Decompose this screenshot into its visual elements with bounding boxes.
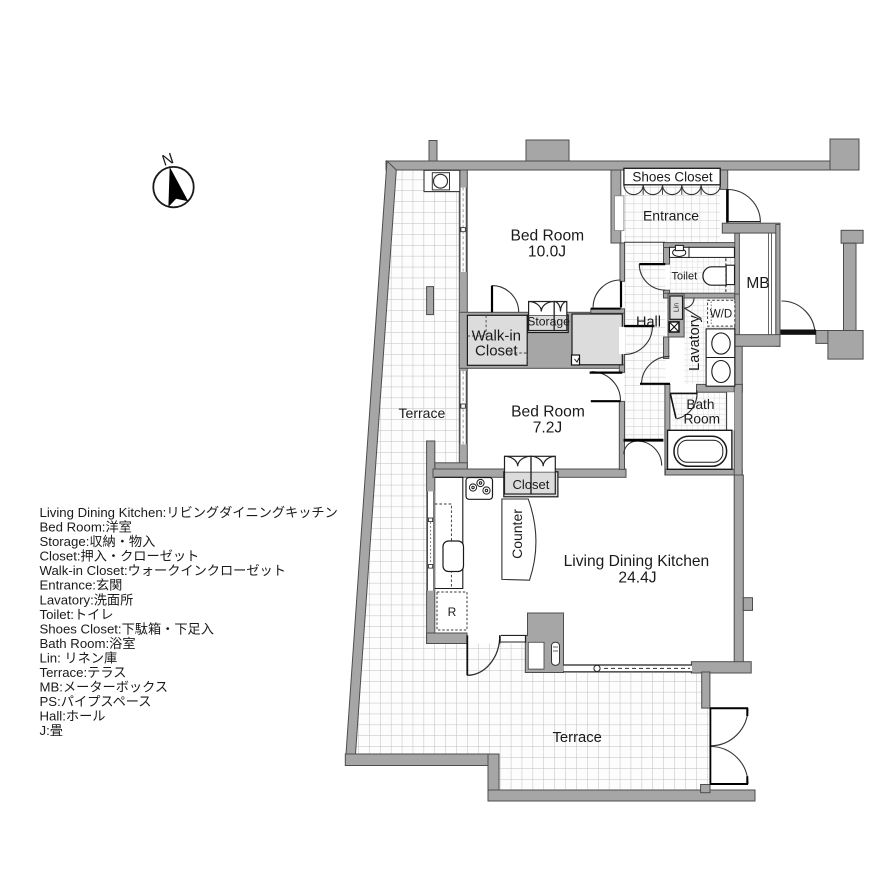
svg-text:Lavatory:洗面所: Lavatory:洗面所	[40, 592, 134, 607]
svg-text:Bath Room:浴室: Bath Room:浴室	[40, 635, 136, 651]
svg-text:R: R	[448, 605, 457, 619]
svg-text:10.0J: 10.0J	[528, 244, 566, 261]
svg-text:Counter: Counter	[509, 509, 525, 559]
svg-text:MB:メーターボックス: MB:メーターボックス	[40, 680, 169, 695]
svg-text:Living Dining Kitchen:リビングダイニン: Living Dining Kitchen:リビングダイニングキッチン	[40, 505, 338, 520]
svg-text:Bed Room: Bed Room	[511, 404, 585, 421]
svg-text:Terrace:テラス: Terrace:テラス	[40, 665, 127, 680]
svg-text:24.4J: 24.4J	[618, 570, 656, 587]
svg-text:Hall: Hall	[636, 314, 661, 330]
svg-text:Lavatory: Lavatory	[687, 314, 703, 370]
svg-text:Living Dining Kitchen: Living Dining Kitchen	[564, 553, 710, 570]
svg-text:Closet: Closet	[475, 343, 518, 360]
svg-text:Terrace: Terrace	[399, 405, 446, 421]
svg-text:Shoes Closet: Shoes Closet	[632, 169, 713, 184]
svg-text:Storage:収納・物入: Storage:収納・物入	[40, 534, 156, 549]
svg-text:Entrance: Entrance	[643, 208, 699, 224]
svg-text:Lin: Lin	[674, 303, 681, 312]
svg-text:W/D: W/D	[710, 308, 732, 320]
svg-text:Shoes Closet:下駄箱・下足入: Shoes Closet:下駄箱・下足入	[40, 621, 214, 636]
svg-text:Toilet:トイレ: Toilet:トイレ	[40, 607, 114, 622]
svg-text:PS:パイプスペース: PS:パイプスペース	[40, 694, 152, 709]
svg-text:Closet:押入・クローゼット: Closet:押入・クローゼット	[40, 549, 200, 564]
svg-text:Bed Room: Bed Room	[510, 228, 584, 245]
svg-text:J:畳: J:畳	[40, 723, 63, 738]
svg-text:Bath: Bath	[686, 397, 714, 412]
svg-text:Room: Room	[684, 412, 721, 427]
svg-text:Storage: Storage	[527, 315, 570, 329]
svg-text:Lin: リネン庫: Lin: リネン庫	[40, 651, 118, 666]
svg-text:Walk-in Closet:ウォークインクローゼット: Walk-in Closet:ウォークインクローゼット	[40, 563, 286, 578]
svg-text:Bed Room:洋室: Bed Room:洋室	[40, 519, 132, 535]
svg-text:7.2J: 7.2J	[533, 420, 562, 437]
svg-text:Hall:ホール: Hall:ホール	[40, 709, 106, 724]
svg-text:Toilet: Toilet	[671, 271, 697, 283]
svg-text:Closet: Closet	[512, 477, 549, 492]
svg-text:MB: MB	[746, 275, 769, 292]
svg-text:Entrance:玄関: Entrance:玄関	[40, 577, 123, 593]
svg-text:Terrace: Terrace	[553, 730, 602, 746]
